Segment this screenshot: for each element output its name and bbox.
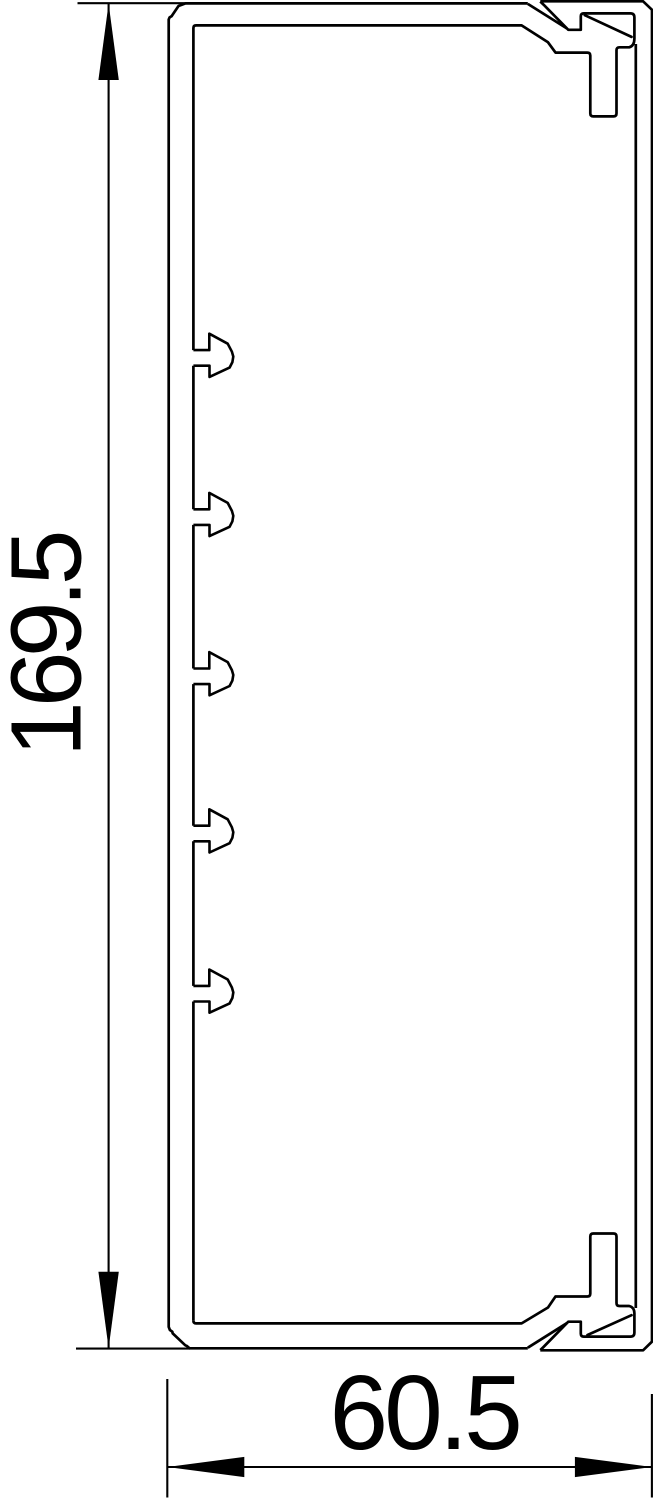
- svg-text:169.5: 169.5: [0, 533, 103, 757]
- svg-text:60.5: 60.5: [330, 1354, 520, 1472]
